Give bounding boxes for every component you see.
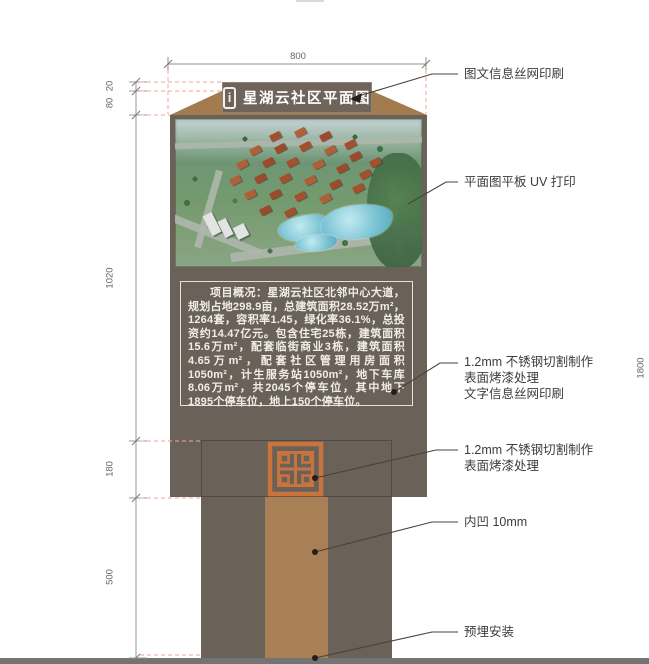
photo-building bbox=[244, 189, 257, 200]
dim-80-label: 80 bbox=[105, 98, 116, 109]
annotation-steel-panel-text: 1.2mm 不锈钢切割制作 表面烤漆处理 文字信息丝网印刷 bbox=[464, 354, 593, 402]
lattice-ornament bbox=[267, 441, 324, 497]
photo-building bbox=[352, 183, 365, 194]
photo-building bbox=[229, 175, 242, 186]
photo-building bbox=[312, 159, 325, 170]
dim-1800-label: 1800 bbox=[636, 357, 647, 378]
photo-building bbox=[269, 189, 282, 200]
annotation-uv-print: 平面图平板 UV 打印 bbox=[464, 174, 576, 190]
elevation-drawing: i 星湖云社区平面图 项目概况：星湖云社区北邻中心大道，规划占地298.9亩，总… bbox=[0, 0, 649, 664]
dim-800-label: 800 bbox=[283, 51, 313, 62]
pedestal-recess-strip bbox=[265, 497, 328, 658]
sign-header-bar: i 星湖云社区平面图 bbox=[222, 82, 372, 113]
photo-building bbox=[259, 205, 272, 216]
project-overview-text: 项目概况：星湖云社区北邻中心大道，规划占地298.9亩，总建筑面积28.52万m… bbox=[188, 287, 405, 409]
dim-20-label: 20 bbox=[105, 81, 116, 92]
photo-building bbox=[249, 145, 262, 156]
photo-building bbox=[236, 159, 249, 170]
dim-180-label: 180 bbox=[105, 461, 116, 477]
ground-line bbox=[0, 658, 649, 664]
dim-500-label: 500 bbox=[105, 569, 116, 585]
photo-building bbox=[359, 169, 372, 180]
photo-building bbox=[269, 131, 282, 142]
photo-building bbox=[304, 175, 317, 186]
photo-building bbox=[319, 131, 332, 142]
annotation-embedded-install: 预埋安装 bbox=[464, 624, 514, 640]
photo-building bbox=[294, 127, 307, 138]
photo-building bbox=[286, 157, 299, 168]
cropped-page-text bbox=[296, 0, 324, 2]
photo-building bbox=[299, 141, 312, 152]
photo-building bbox=[279, 173, 292, 184]
info-icon: i bbox=[223, 87, 236, 109]
photo-building bbox=[254, 173, 267, 184]
annotation-steel-lattice: 1.2mm 不锈钢切割制作 表面烤漆处理 bbox=[464, 442, 593, 474]
project-overview-box: 项目概况：星湖云社区北邻中心大道，规划占地298.9亩，总建筑面积28.52万m… bbox=[180, 281, 413, 406]
photo-building bbox=[324, 145, 337, 156]
photo-building bbox=[329, 179, 342, 190]
aerial-plan-photo bbox=[175, 119, 422, 267]
photo-building bbox=[336, 163, 349, 174]
photo-building bbox=[274, 143, 287, 154]
photo-building bbox=[319, 193, 332, 204]
photo-building bbox=[262, 157, 275, 168]
dim-left-chain bbox=[129, 78, 147, 662]
dim-1020-label: 1020 bbox=[105, 267, 116, 288]
photo-building bbox=[294, 191, 307, 202]
photo-building bbox=[349, 151, 362, 162]
photo-building bbox=[344, 139, 357, 150]
annotation-recess: 内凹 10mm bbox=[464, 514, 527, 530]
sign-title: 星湖云社区平面图 bbox=[243, 87, 371, 108]
photo-building bbox=[369, 157, 382, 168]
annotation-silkscreen-graphics: 图文信息丝网印刷 bbox=[464, 66, 564, 82]
